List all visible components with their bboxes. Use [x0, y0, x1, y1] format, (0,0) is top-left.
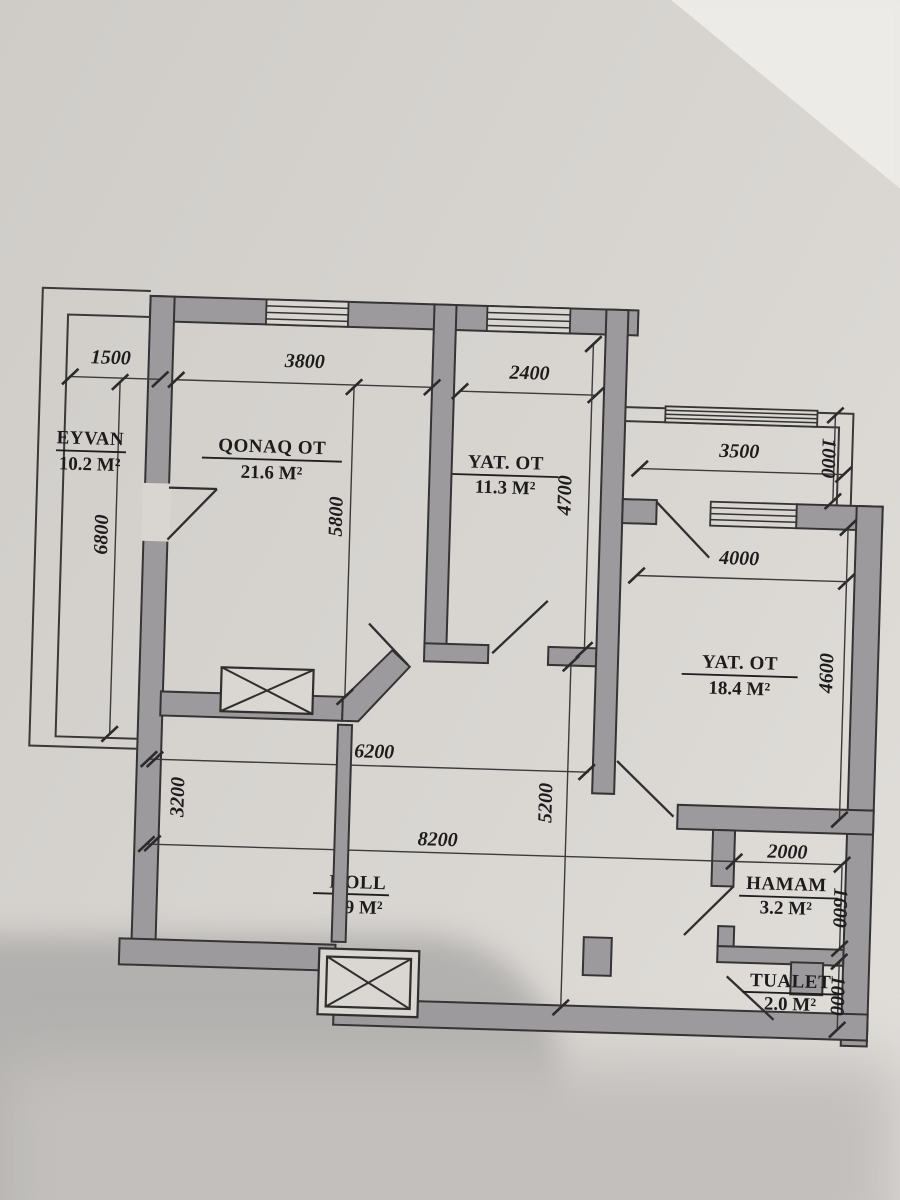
room-area-hamam: 3.2 M² [759, 897, 812, 920]
door-bedroom2-bottom-leaf [615, 761, 675, 817]
room-name-eyvan: EYVAN [56, 427, 124, 450]
dim-label-1600: 1600 [828, 887, 851, 928]
floor-plan-drawing: 1500 3800 2400 3500 4000 6200 8200 2000 … [0, 0, 900, 1200]
dim-label-4000: 4000 [718, 547, 760, 570]
wall-stub-a [424, 643, 489, 663]
dim-label-5200: 5200 [534, 783, 557, 824]
wall-bedroom2-top-left [622, 499, 657, 524]
room-label-eyvan: EYVAN 10.2 M² [55, 427, 126, 476]
dim-label-8200: 8200 [417, 828, 458, 851]
dim-label-1500: 1500 [90, 346, 131, 369]
wall-angled [342, 649, 410, 723]
door-bedroom2-top-leaf [655, 502, 711, 558]
room-label-yataq-big: YAT. OT 18.4 M² [681, 651, 798, 701]
dim-label-2400: 2400 [508, 362, 550, 385]
room-area-yataq-big: 18.4 M² [708, 678, 771, 701]
dim-label-4600: 4600 [815, 653, 838, 695]
room-name-yataq-big: YAT. OT [702, 651, 779, 674]
wall-hamam-left [711, 830, 735, 887]
room-label-yataq-small: YAT. OT 11.3 M² [452, 451, 559, 500]
room-name-hamam: HAMAM [746, 873, 827, 896]
dim-label-3500: 3500 [718, 440, 760, 463]
duct-column [583, 937, 612, 976]
dim-label-6800: 6800 [90, 514, 113, 555]
door-eyvan-leaf-a [169, 488, 217, 489]
wall-bedroom2-bottom [677, 805, 874, 835]
shaft-box-upper [220, 667, 313, 714]
wall-hamam-tualet [717, 946, 843, 966]
door-eyvan-leaf-b [167, 488, 217, 541]
scanned-floor-plan-photo: 1500 3800 2400 3500 4000 6200 8200 2000 … [0, 0, 900, 1200]
door-gap-eyvan [141, 483, 171, 542]
dim-label-1000-balcony: 1000 [817, 438, 840, 479]
wall-bottom-left [119, 938, 336, 970]
room-label-hamam: HAMAM 3.2 M² [738, 873, 838, 921]
room-area-qonaq: 21.6 M² [240, 462, 303, 485]
doors [128, 483, 789, 1020]
room-name-tualet: TUALET [750, 970, 832, 993]
dim-label-3200: 3200 [166, 777, 189, 819]
room-label-qonaq: QONAQ OT 21.6 M² [201, 435, 342, 486]
window-yataq-small [487, 306, 571, 333]
window-balcony2 [665, 406, 817, 427]
windows [260, 299, 820, 528]
room-area-tualet: 2.0 M² [764, 993, 817, 1016]
wall-qonaq-yataq [424, 304, 456, 645]
dim-label-6200: 6200 [354, 740, 395, 763]
shaft-box-lower [317, 948, 419, 1017]
room-label-holl: HOLL 9 M² [312, 871, 389, 919]
wall-yataq-right [592, 309, 628, 793]
room-label-tualet: TUALET 2.0 M² [742, 970, 839, 1017]
room-area-yataq-small: 11.3 M² [475, 477, 536, 500]
wall-left [131, 296, 174, 946]
window-qonaq [266, 299, 349, 326]
dim-label-4700: 4700 [553, 475, 576, 517]
room-area-eyvan: 10.2 M² [59, 453, 122, 476]
dim-label-2000: 2000 [766, 840, 808, 863]
balcony2-inner-wall [623, 421, 839, 505]
room-name-qonaq: QONAQ OT [218, 435, 327, 459]
dim-label-3800: 3800 [283, 350, 325, 373]
door-yataq-small-leaf [492, 599, 548, 655]
room-name-yataq-small: YAT. OT [468, 451, 545, 474]
window-yataq-big [710, 502, 797, 529]
dim-label-5800: 5800 [325, 496, 348, 537]
room-area-holl: 9 M² [344, 897, 383, 919]
